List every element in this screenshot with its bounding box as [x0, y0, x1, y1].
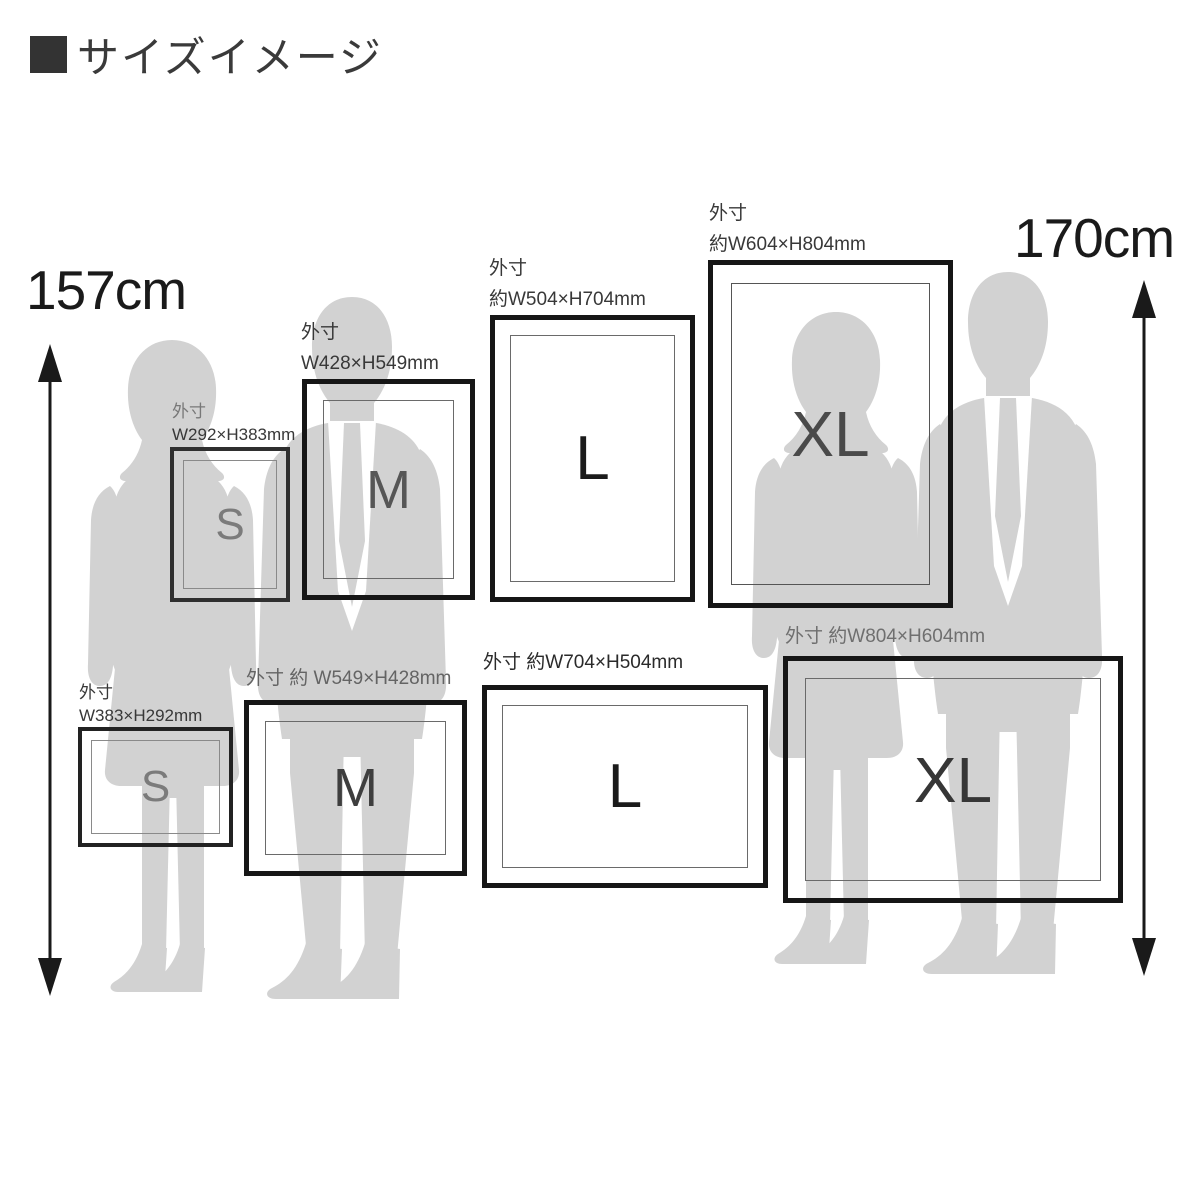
size-comparison-diagram: サイズイメージ 157cm 170cm S M L XL S M L XL 外寸…: [0, 0, 1200, 1200]
frame-m-landscape: M: [244, 700, 467, 876]
label-s-portrait-line1: 外寸: [172, 400, 295, 423]
frame-s-portrait-letter: S: [215, 500, 244, 550]
frame-m-portrait-letter: M: [366, 459, 411, 521]
label-l-portrait-line2: 約W504×H704mm: [489, 284, 646, 315]
header: サイズイメージ: [30, 24, 383, 85]
frame-s-landscape-letter: S: [141, 762, 170, 812]
label-xl-landscape-dimensions: 外寸 約W804×H604mm: [785, 624, 985, 650]
title-square-icon: [30, 36, 67, 73]
frame-xl-landscape-letter: XL: [914, 743, 992, 817]
label-xl-portrait-line1: 外寸: [709, 198, 866, 229]
label-l-landscape-line1: 外寸 約W704×H504mm: [483, 650, 683, 676]
frame-l-landscape-letter: L: [608, 751, 642, 822]
frame-l-portrait: L: [490, 315, 695, 602]
frame-xl-portrait: XL: [708, 260, 953, 608]
frame-m-landscape-letter: M: [333, 757, 378, 819]
label-xl-landscape-line1: 外寸 約W804×H604mm: [785, 624, 985, 650]
label-s-portrait-line2: W292×H383mm: [172, 423, 295, 446]
frame-xl-portrait-letter: XL: [791, 397, 869, 471]
frame-l-landscape: L: [482, 685, 768, 888]
label-s-landscape-line2: W383×H292mm: [79, 704, 202, 727]
label-m-portrait-line2: W428×H549mm: [301, 348, 439, 379]
label-m-landscape-dimensions: 外寸 約 W549×H428mm: [246, 666, 451, 692]
label-l-landscape-dimensions: 外寸 約W704×H504mm: [483, 650, 683, 676]
female-height-label: 157cm: [26, 258, 186, 322]
page-title: サイズイメージ: [77, 24, 383, 85]
label-m-portrait-line1: 外寸: [301, 317, 439, 348]
frame-xl-landscape: XL: [783, 656, 1123, 903]
label-s-portrait-dimensions: 外寸 W292×H383mm: [172, 400, 295, 446]
label-m-portrait-dimensions: 外寸 W428×H549mm: [301, 317, 439, 379]
label-m-landscape-line1: 外寸 約 W549×H428mm: [246, 666, 451, 692]
label-s-landscape-dimensions: 外寸 W383×H292mm: [79, 681, 202, 727]
female-height-arrow: [38, 344, 62, 996]
frame-m-portrait: M: [302, 379, 475, 600]
frame-s-landscape: S: [78, 727, 233, 847]
label-l-portrait-line1: 外寸: [489, 253, 646, 284]
male-height-arrow: [1132, 280, 1156, 976]
frame-s-portrait: S: [170, 447, 290, 602]
frame-l-portrait-letter: L: [575, 423, 609, 494]
label-xl-portrait-line2: 約W604×H804mm: [709, 229, 866, 260]
male-height-label: 170cm: [1014, 206, 1174, 270]
label-s-landscape-line1: 外寸: [79, 681, 202, 704]
label-l-portrait-dimensions: 外寸 約W504×H704mm: [489, 253, 646, 315]
label-xl-portrait-dimensions: 外寸 約W604×H804mm: [709, 198, 866, 260]
